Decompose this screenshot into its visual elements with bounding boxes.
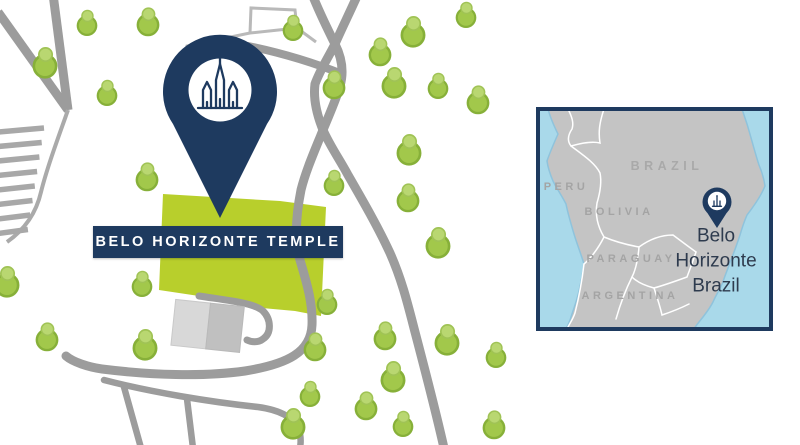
tree-icon — [98, 80, 116, 104]
tree-icon — [284, 15, 302, 39]
tree-icon — [138, 8, 158, 35]
belo-horizonte-temple-map: BELO HORIZONTE TEMPLE — [0, 0, 800, 445]
tree-icon — [134, 330, 156, 359]
tree-icon — [34, 48, 56, 77]
tree-icon — [356, 392, 376, 419]
tree-icon — [487, 342, 505, 366]
tree-icon — [398, 135, 420, 164]
tree-icon — [468, 86, 488, 113]
tree-icon — [37, 323, 57, 350]
building — [171, 299, 244, 352]
tree-icon — [457, 2, 475, 26]
inset-map: BRAZIL PERU BOLIVIA PARAGUAY ARGENTINA B… — [536, 107, 773, 331]
tree-icon — [383, 68, 405, 97]
tree-icon — [133, 271, 151, 295]
tree-icon — [370, 38, 390, 65]
tree-icon — [137, 163, 157, 190]
inset-location-line1: Belo — [675, 224, 756, 249]
tree-icon — [429, 73, 447, 97]
railway-strip — [0, 0, 68, 242]
inset-location-line3: Brazil — [675, 274, 756, 299]
tree-icon — [382, 362, 404, 391]
tree-icon — [301, 381, 319, 405]
tree-icon — [78, 10, 96, 34]
tree-icon — [0, 267, 18, 296]
temple-location-pin — [163, 35, 277, 218]
tree-icon — [484, 411, 504, 438]
tree-icon — [402, 17, 424, 46]
tree-icon — [325, 170, 343, 194]
temple-name-banner: BELO HORIZONTE TEMPLE — [93, 226, 343, 258]
temple-name-label: BELO HORIZONTE TEMPLE — [95, 234, 340, 250]
inset-location-label: Belo Horizonte Brazil — [675, 224, 756, 299]
tree-icon — [394, 411, 412, 435]
inset-location-line2: Horizonte — [675, 249, 756, 274]
tree-icon — [436, 325, 458, 354]
tree-icon — [398, 184, 418, 211]
tree-icon — [375, 322, 395, 349]
tree-icon — [427, 228, 449, 257]
